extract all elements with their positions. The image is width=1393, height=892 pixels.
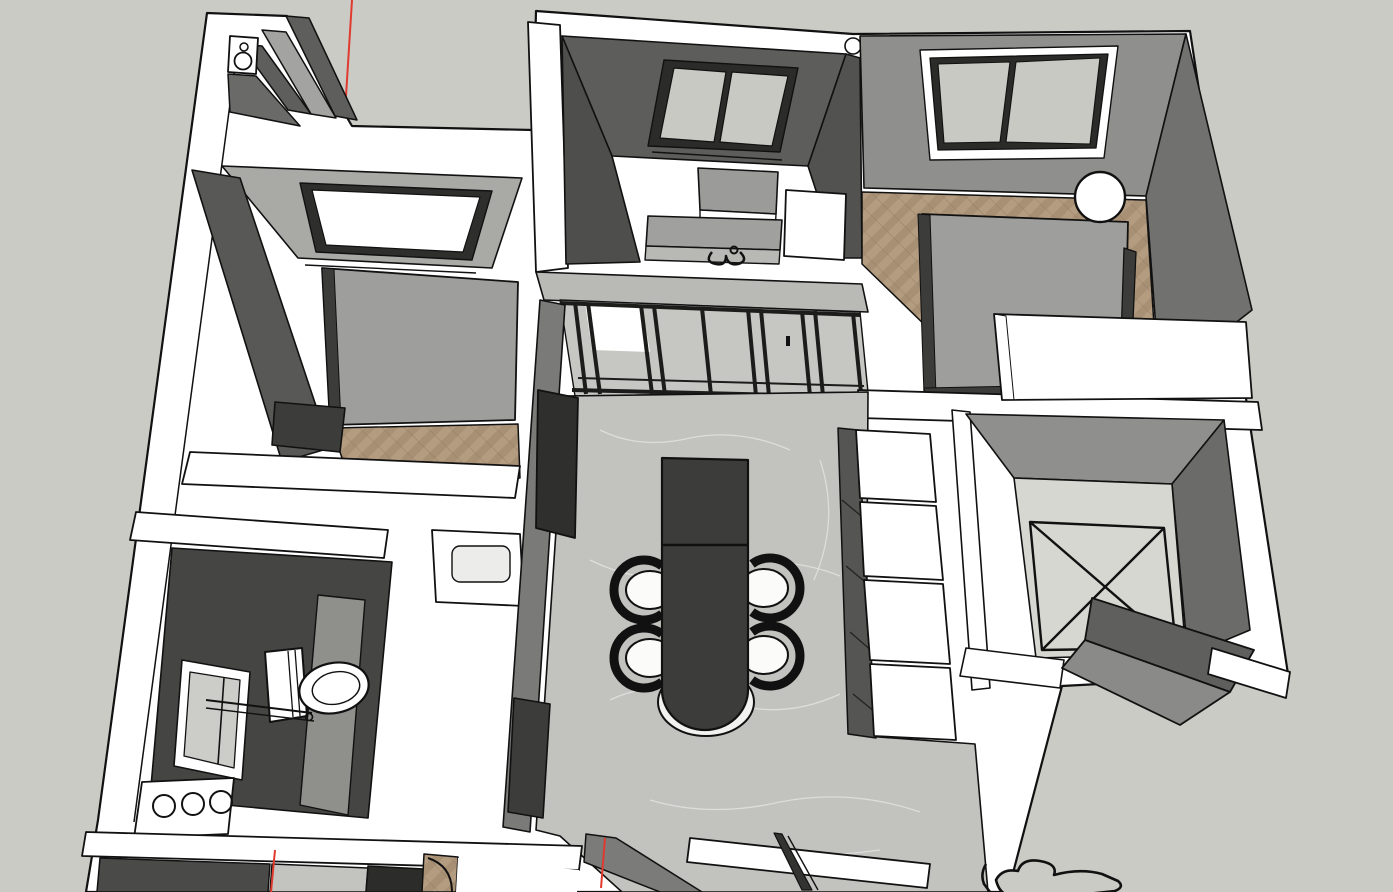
sphere-lamp[interactable]: sphere pendant lamp	[1075, 172, 1125, 222]
cabinet-door[interactable]	[864, 580, 950, 664]
dark-room	[97, 858, 270, 892]
cabinet-door[interactable]	[870, 664, 956, 740]
table-top[interactable]	[662, 458, 748, 730]
hall-basin[interactable]: wash basin counter	[432, 530, 524, 606]
desk[interactable]: white desk	[994, 314, 1252, 400]
fridge[interactable]: refrigerator	[784, 190, 846, 260]
sink-counter[interactable]: sink counter with faucet	[645, 216, 782, 264]
basin-bowl	[452, 546, 510, 582]
bedroom-window: bedroom window	[920, 46, 1118, 160]
glass-partition[interactable]: black-framed glass sliding partition	[536, 272, 868, 397]
media-console	[366, 866, 424, 892]
bathroom-window: bathroom window	[174, 660, 250, 780]
door-handle-icon	[786, 336, 790, 346]
cabinet-door[interactable]	[856, 430, 936, 502]
model-viewport[interactable]: 3D modeling viewport (SketchUp-style) sh…	[0, 0, 1393, 892]
window-glass	[312, 190, 480, 252]
marble-wall-panel	[270, 864, 368, 892]
bed[interactable]	[322, 268, 518, 425]
lower-wall-panel	[508, 698, 550, 818]
floorplan-3d-scene[interactable]: 3D modeling viewport (SketchUp-style) sh…	[0, 0, 1393, 892]
kitchen-window: kitchen window	[648, 60, 798, 160]
vanity[interactable]: vanity with three round basins	[134, 778, 234, 838]
room-kitchen[interactable]: Kitchen — window, island, sink counter w…	[528, 22, 862, 272]
nightstand[interactable]: nightstand	[272, 402, 345, 452]
tv-panel[interactable]: wall TV panel	[536, 390, 578, 538]
pipe-column	[845, 38, 861, 54]
washing-machine[interactable]: top-load washing machine	[228, 36, 258, 74]
cabinet-door[interactable]	[860, 502, 943, 580]
